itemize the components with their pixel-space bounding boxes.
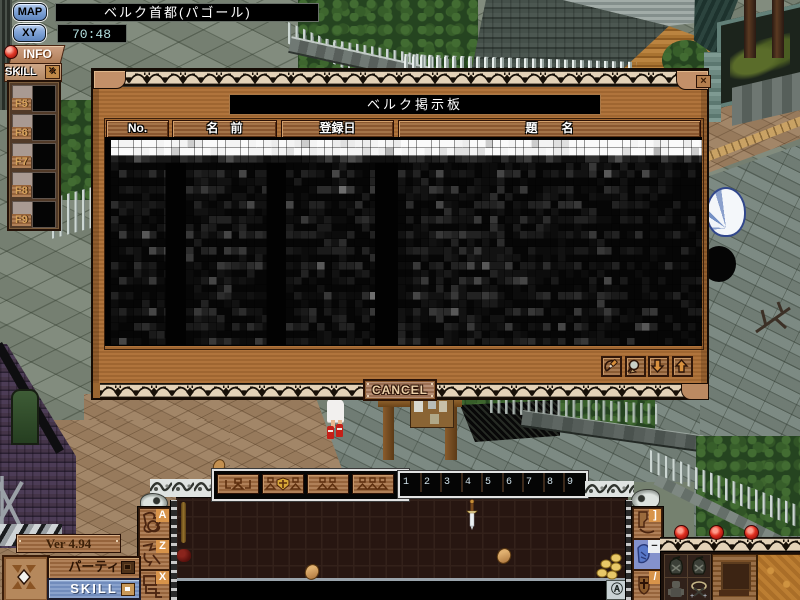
- svg-text:+: +: [703, 593, 707, 600]
- svg-text:+: +: [690, 593, 694, 600]
